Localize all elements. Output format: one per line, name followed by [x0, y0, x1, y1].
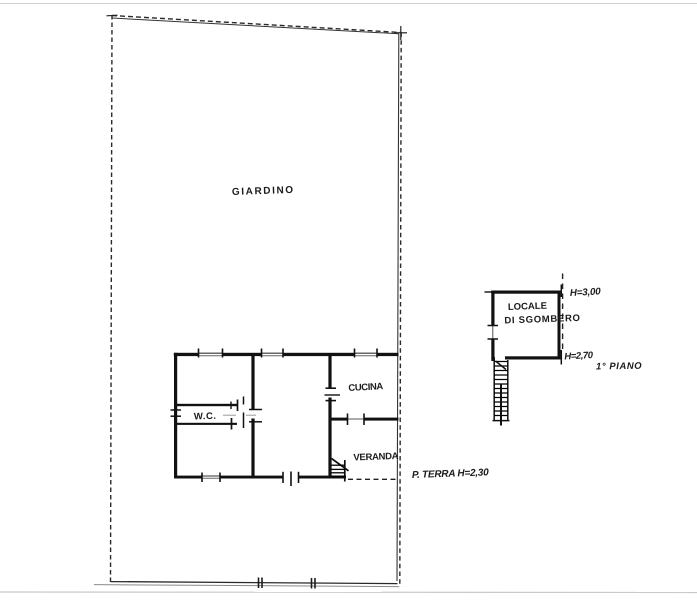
- svg-text:LOCALE: LOCALE: [508, 301, 547, 313]
- svg-text:1° PIANO: 1° PIANO: [596, 361, 642, 373]
- svg-text:GIARDINO: GIARDINO: [232, 185, 295, 198]
- svg-text:H=2,70: H=2,70: [564, 350, 594, 363]
- svg-text:VERANDA: VERANDA: [353, 451, 399, 464]
- svg-text:CUCINA: CUCINA: [348, 381, 384, 394]
- svg-text:H=3,00: H=3,00: [570, 286, 602, 299]
- svg-text:W.C.: W.C.: [194, 411, 217, 423]
